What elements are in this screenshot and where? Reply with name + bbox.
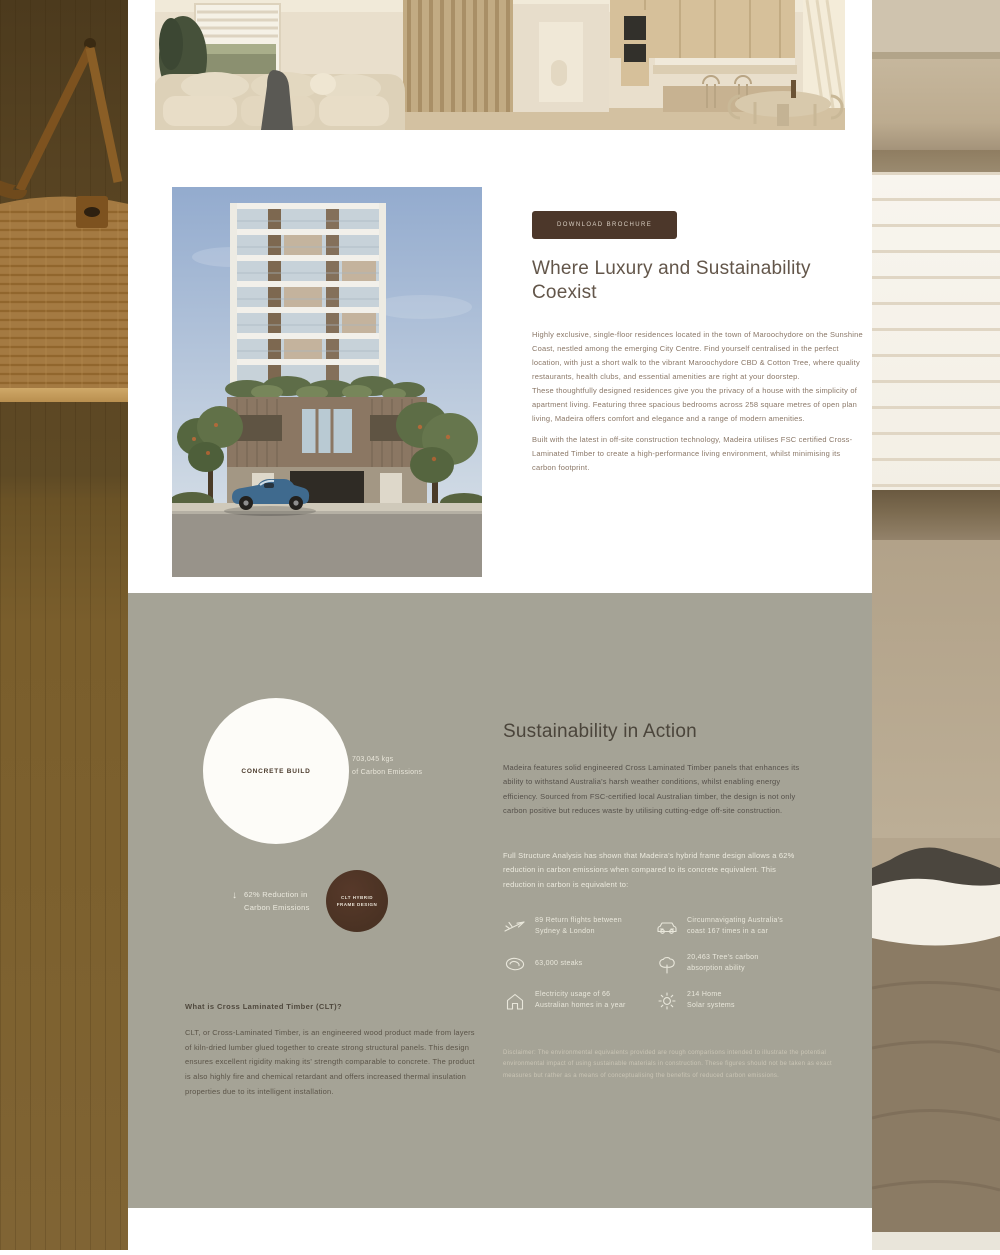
reduction-label: ↓ 62% Reduction in Carbon Emissions	[232, 889, 310, 915]
stat-steaks: 63,000 steaks	[503, 952, 655, 976]
stat-car: Circumnavigating Australia's coast 167 t…	[655, 915, 868, 939]
stat-solar: 214 Home Solar systems	[655, 989, 868, 1013]
down-arrow-icon: ↓	[232, 889, 237, 903]
bedroom-cornice	[872, 52, 1000, 59]
concrete-build-circle: CONCRETE BUILD	[203, 698, 349, 844]
sustainability-heading: Sustainability in Action	[503, 721, 697, 743]
wood-shelf-edge	[0, 388, 128, 402]
solar-icon	[655, 989, 679, 1013]
concrete-emissions-value: 703,045 kgs of Carbon Emissions	[352, 754, 422, 779]
background-right-bedroom	[872, 0, 1000, 1250]
intro-heading: Where Luxury and Sustainability Coexist	[532, 257, 862, 305]
window-lintel	[872, 150, 1000, 172]
bed-image	[872, 838, 1000, 1250]
equivalents-stats-grid: 89 Return flights between Sydney & Londo…	[503, 915, 868, 1013]
tree-icon	[655, 952, 679, 976]
bedroom-wall	[872, 540, 1000, 840]
intro-paragraph-2: These thoughtfully designed residences g…	[532, 384, 866, 426]
structure-analysis-text: Full Structure Analysis has shown that M…	[503, 849, 803, 892]
stat-electricity: Electricity usage of 66 Australian homes…	[503, 989, 655, 1013]
hero-interior-image	[155, 0, 845, 130]
clt-hybrid-label: CLT HYBRID FRAME DESIGN	[337, 894, 378, 908]
stat-flights: 89 Return flights between Sydney & Londo…	[503, 915, 655, 939]
steak-icon	[503, 952, 527, 976]
hanging-bag-image	[0, 0, 128, 625]
house-icon	[503, 989, 527, 1013]
sustainability-section: CONCRETE BUILD 703,045 kgs of Carbon Emi…	[128, 593, 872, 1208]
car-icon	[655, 915, 679, 939]
window-sill	[872, 490, 1000, 540]
clt-body-text: CLT, or Cross-Laminated Timber, is an en…	[185, 1026, 478, 1099]
concrete-build-label: CONCRETE BUILD	[241, 768, 310, 775]
clt-hybrid-circle: CLT HYBRID FRAME DESIGN	[326, 870, 388, 932]
bedroom-floor-sliver	[872, 1232, 1000, 1250]
background-left-wood-wall	[0, 0, 128, 1250]
building-render-image	[172, 187, 482, 577]
website-page: DOWNLOAD BROCHURE Where Luxury and Susta…	[128, 0, 872, 1250]
reduction-text: 62% Reduction in Carbon Emissions	[244, 889, 310, 915]
window-blinds	[872, 172, 1000, 490]
bedroom-ceiling	[872, 0, 1000, 52]
clt-heading: What is Cross Laminated Timber (CLT)?	[185, 1002, 342, 1011]
sustainability-intro: Madeira features solid engineered Cross …	[503, 761, 815, 818]
download-brochure-button[interactable]: DOWNLOAD BROCHURE	[532, 211, 677, 239]
bedroom-wall-beam	[872, 59, 1000, 150]
intro-paragraph-1: Highly exclusive, single-floor residence…	[532, 328, 866, 384]
intro-paragraph-3: Built with the latest in off-site constr…	[532, 433, 866, 475]
stat-trees: 20,463 Tree's carbon absorption ability	[655, 952, 868, 976]
airplane-icon	[503, 915, 527, 939]
disclaimer-text: Disclaimer: The environmental equivalent…	[503, 1048, 855, 1082]
